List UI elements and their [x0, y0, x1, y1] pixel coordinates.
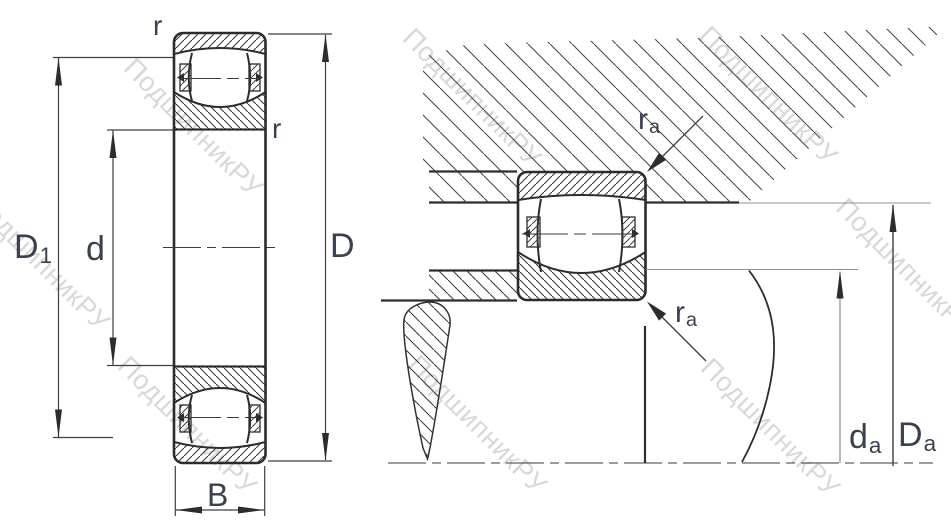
- drawing-canvas: [0, 0, 951, 532]
- shaft-breakout-section: [404, 302, 450, 459]
- label-shaft-shoulder-da: da: [849, 420, 881, 454]
- label-shoulder-diameter-d1: D1: [14, 230, 52, 264]
- label-outer-diameter-D: D: [330, 229, 355, 263]
- label-bore-diameter-d: d: [86, 232, 105, 266]
- dimension-lines-mounting: [646, 203, 931, 466]
- label-corner-radius-top: r: [153, 12, 162, 40]
- mounted-bearing-internals: [518, 172, 646, 300]
- label-housing-fillet-ra: ra: [638, 105, 660, 135]
- label-shaft-fillet-ra: ra: [675, 298, 697, 328]
- label-width-B: B: [207, 479, 228, 511]
- label-housing-shoulder-Da: Da: [898, 418, 936, 452]
- housing-section: [423, 26, 947, 204]
- shaft-shoulder-curve: [742, 271, 774, 463]
- label-corner-radius-inner: r: [272, 115, 281, 143]
- bearing-technical-drawing: ПодшипникРУ ПодшипникРУ ПодшипникРУ Подш…: [0, 0, 951, 532]
